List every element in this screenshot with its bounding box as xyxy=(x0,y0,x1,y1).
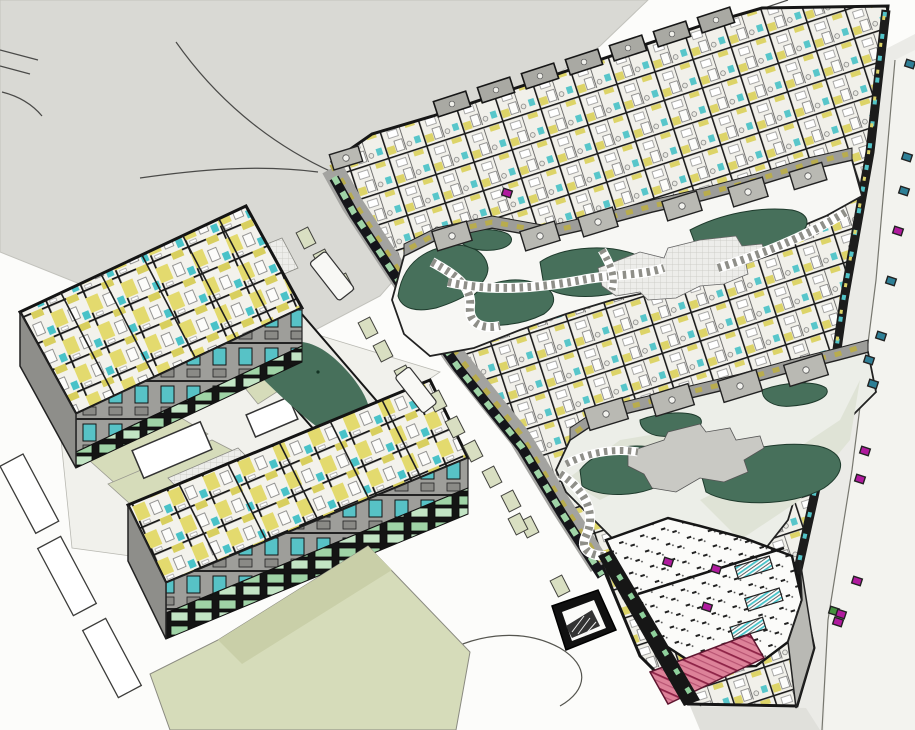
roof-garden-dot xyxy=(316,370,319,373)
model-viewport[interactable]: 3D site model — axonometric cutaway view… xyxy=(0,0,915,730)
site-model-svg: Axonometric cutaway 3D model of a housin… xyxy=(0,0,915,730)
shadow-bottom-right xyxy=(690,706,820,730)
